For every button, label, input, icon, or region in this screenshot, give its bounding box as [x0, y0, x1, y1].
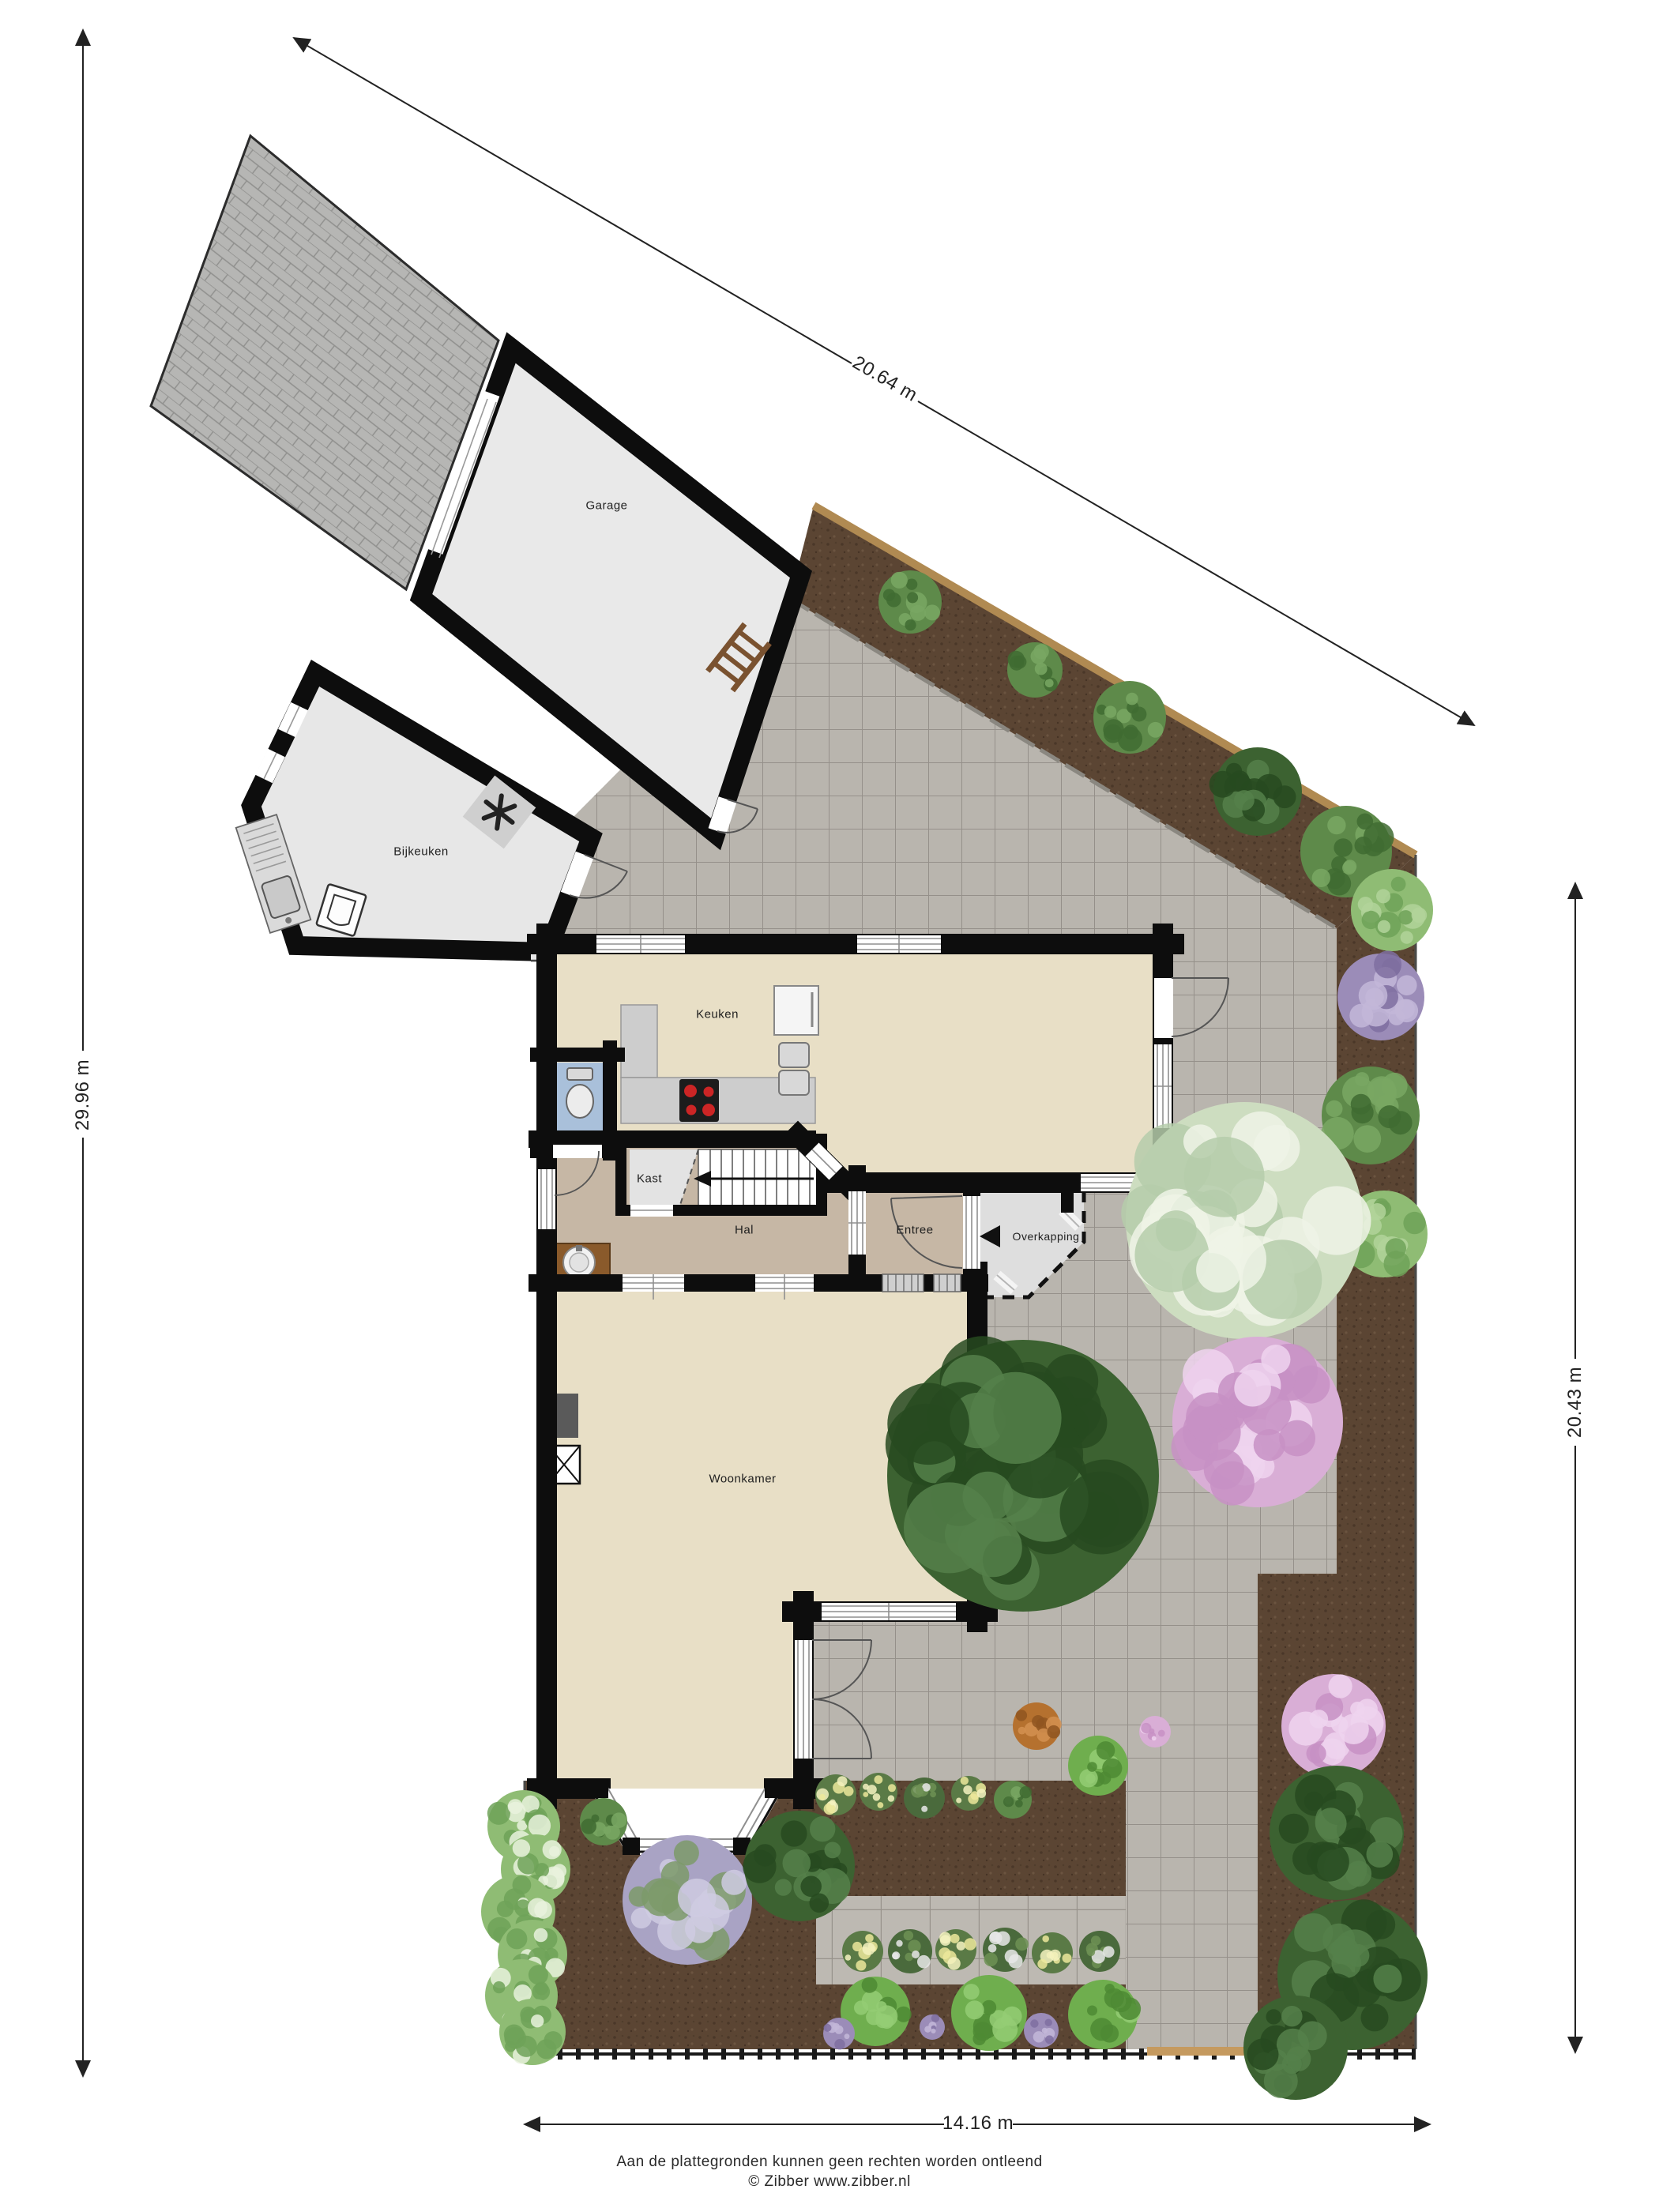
room-label-kast: Kast	[637, 1172, 662, 1186]
room-label-keuken: Keuken	[696, 1008, 739, 1021]
toilet-door	[553, 1145, 602, 1158]
room-label-bijkeuken: Bijkeuken	[393, 845, 449, 859]
toilet-icon	[566, 1068, 593, 1118]
footer-copyright: © Zibber www.zibber.nl	[748, 2173, 911, 2191]
toilet-room	[555, 1063, 608, 1142]
room-label-entree: Entree	[896, 1224, 933, 1237]
counter	[621, 1005, 657, 1078]
footer-disclaimer: Aan de plattegronden kunnen geen rechten…	[616, 2154, 1042, 2171]
floor-plan-canvas: Garage Bijkeuken Keuken Kast Hal Entree …	[0, 0, 1659, 2212]
room-label-woonkamer: Woonkamer	[709, 1473, 776, 1486]
dimension-left: 29.96 m	[72, 1059, 94, 1130]
porch-post	[1061, 1191, 1074, 1213]
stove-icon	[679, 1079, 719, 1122]
kitchen-side-door	[1154, 978, 1173, 1038]
room-label-garage: Garage	[585, 499, 627, 513]
garden-gate	[1147, 2047, 1256, 2056]
dimension-bottom: 14.16 m	[942, 2112, 1014, 2135]
room-label-hal: Hal	[735, 1224, 754, 1237]
sink-icon	[779, 1043, 809, 1067]
room-label-overkapping: Overkapping	[1013, 1230, 1080, 1243]
dimension-right: 20.43 m	[1564, 1367, 1586, 1438]
garage-back-door	[717, 799, 728, 831]
doormat	[882, 1274, 924, 1292]
site-plan-drawing	[0, 0, 1659, 2212]
